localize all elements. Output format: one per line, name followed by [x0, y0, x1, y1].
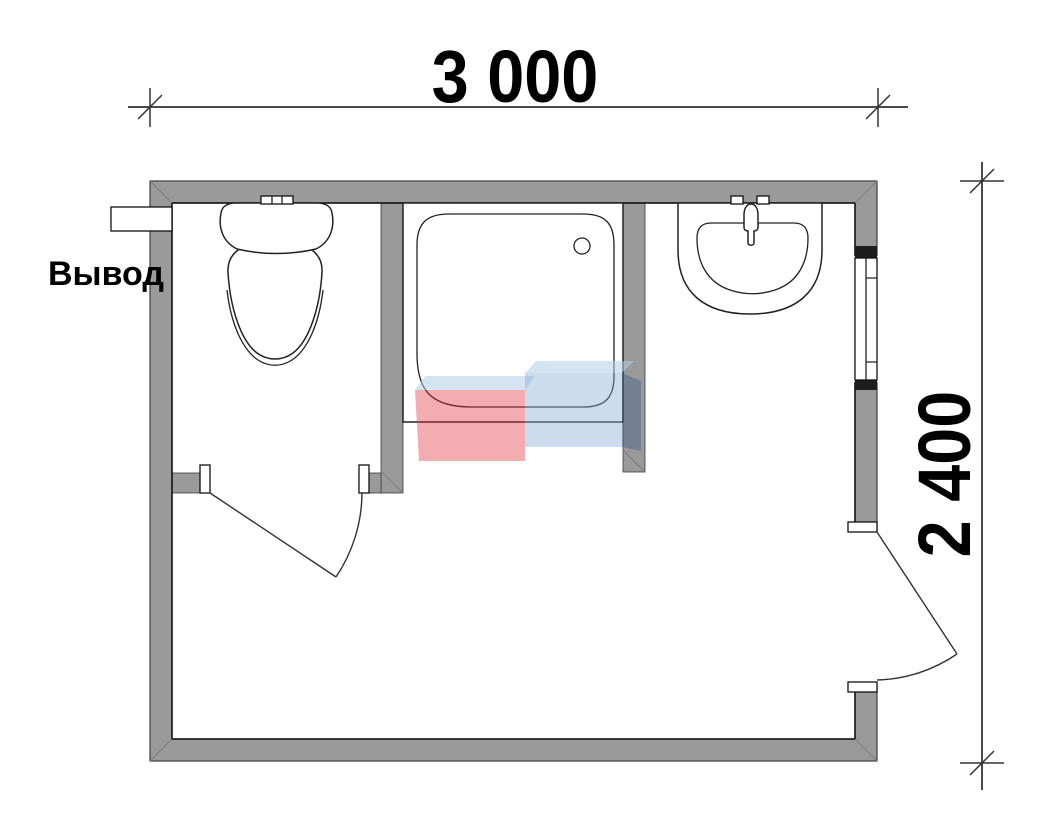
height-dimension-label: 2 400: [905, 326, 985, 623]
outlet-label: Вывод: [48, 256, 164, 292]
watermark-logo: [415, 361, 641, 461]
water-supply-left: [731, 196, 743, 204]
watermark-right-bevel: [622, 373, 641, 451]
partition-wall-toilet: [381, 203, 403, 493]
floor-plan-page: 3 000 2 400 Вывод VANDA: [0, 0, 1054, 818]
window-cap-bottom: [855, 380, 877, 390]
washbasin: [678, 196, 822, 314]
toilet-tank: [220, 203, 333, 254]
watermark-red-bevel: [415, 376, 535, 390]
entrance-door-jamb-bottom: [848, 682, 877, 692]
window-cap-top: [855, 246, 877, 258]
toilet-door-jamb-left: [200, 465, 210, 493]
wall-bottom: [150, 739, 877, 761]
watermark-blue-slab: [525, 373, 622, 447]
entrance-door-swing-arc: [877, 654, 957, 680]
door-stub-left: [172, 473, 200, 493]
floor-plan-drawing: [0, 0, 1054, 818]
window: [855, 246, 877, 390]
water-supply-right: [757, 196, 769, 204]
toilet-flush-button: [261, 196, 293, 204]
door-stub-right: [369, 473, 381, 493]
toilet-door-jamb-right: [359, 465, 369, 493]
water-outlet-pipe: [111, 207, 172, 231]
door-opening: [852, 531, 880, 683]
toilet: [220, 196, 333, 365]
toilet-door-swing-arc: [336, 493, 362, 577]
watermark-red-slab: [415, 390, 525, 461]
toilet-door-leaf: [210, 493, 336, 577]
width-dimension-label: 3 000: [367, 40, 664, 114]
entrance-door-jamb-top: [848, 522, 877, 532]
toilet-door: [200, 465, 369, 577]
watermark-blue-bevel: [525, 361, 634, 373]
watermark-text: VANDA: [14, 0, 225, 70]
